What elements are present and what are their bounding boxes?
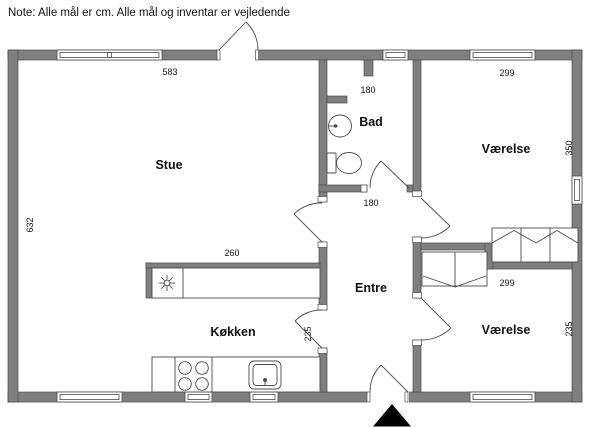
- washbasin-icon: [329, 115, 352, 137]
- room-label-bad: Bad: [359, 115, 383, 129]
- kitchen-counter-bottom: [152, 357, 320, 392]
- wardrobe-top-icon: [492, 228, 578, 262]
- window-koekken-bottom-2: [250, 392, 278, 402]
- door-vaerelse-bottom: [421, 298, 451, 340]
- outer-wall-right: [572, 50, 582, 402]
- dim-vaerelse-top-width: 299: [499, 68, 514, 78]
- window-vaerelse-top: [470, 50, 535, 60]
- window-koekken-bottom-1: [185, 392, 212, 402]
- wall-divider-lower: [487, 262, 572, 269]
- dim-vaerelse-bottom-depth: 235: [564, 321, 574, 336]
- window-vaerelse-bottom: [470, 392, 535, 402]
- cooktop-star-icon: [159, 275, 175, 291]
- wall-column-upper: [413, 60, 421, 196]
- door-terrace-top: [219, 22, 258, 50]
- window-stue-bottom: [57, 392, 122, 402]
- wall-kitchen-peninsula-top: [146, 263, 320, 268]
- floor-plan: Note: Alle mål er cm. Alle mål og invent…: [0, 0, 600, 428]
- dim-koekken-depth: 235: [303, 326, 313, 341]
- fixtures: [152, 115, 578, 392]
- dim-koekken-counter: 260: [224, 248, 239, 258]
- wall-column-middle: [413, 237, 421, 298]
- window-stue-top: [57, 50, 162, 60]
- walls: [8, 50, 582, 402]
- door-bad: [370, 161, 409, 188]
- kitchen-sink-icon: [249, 361, 281, 389]
- room-label-vaerelse-bottom: Værelse: [482, 323, 531, 337]
- wardrobe-bottom-icon: [422, 252, 487, 287]
- wall-bad-left: [319, 60, 327, 192]
- wall-divider-upper: [421, 243, 490, 250]
- kitchen-counter-island: [152, 268, 320, 298]
- door-openings: [217, 50, 409, 403]
- north-arrow-icon: [373, 404, 411, 427]
- dim-vaerelse-bottom-width: 299: [499, 278, 514, 288]
- dim-vaerelse-top-depth: 350: [564, 140, 574, 155]
- wall-column-lower: [413, 340, 421, 392]
- dim-stue-depth: 632: [25, 217, 35, 232]
- wall-bad-bottom: [319, 185, 367, 192]
- window-vaerelse-right: [572, 176, 582, 204]
- wall-bad-shelf-stub: [327, 96, 347, 103]
- dim-stue-width: 583: [162, 67, 177, 77]
- door-vaerelse-top: [421, 198, 450, 238]
- door-stue: [294, 203, 322, 242]
- wall-bad-top-stub: [364, 60, 373, 76]
- toilet-icon: [327, 153, 362, 174]
- window-bad-top: [383, 50, 408, 60]
- outer-wall-left: [8, 50, 18, 402]
- note-text: Note: Alle mål er cm. Alle mål og invent…: [8, 7, 290, 19]
- room-label-vaerelse-top: Værelse: [482, 142, 531, 156]
- room-label-koekken: Køkken: [210, 325, 255, 339]
- room-label-entre: Entre: [355, 281, 387, 295]
- floor-plan-page: Note: Alle mål er cm. Alle mål og invent…: [0, 0, 600, 428]
- room-label-stue: Stue: [155, 158, 182, 172]
- dim-entre-width: 180: [363, 198, 378, 208]
- dim-bad-width: 180: [360, 85, 375, 95]
- door-front: [370, 365, 408, 392]
